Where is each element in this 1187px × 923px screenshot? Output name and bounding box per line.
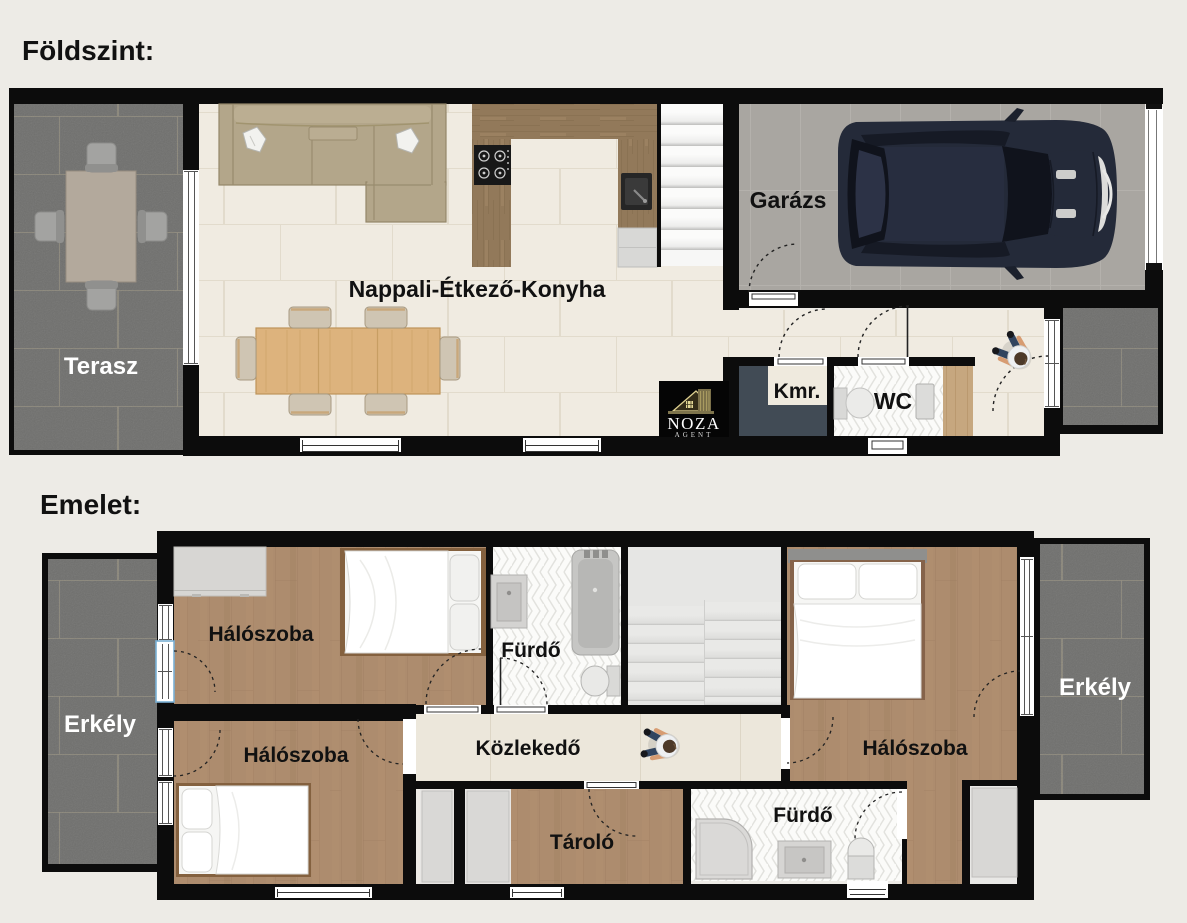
svg-text:Terasz: Terasz (64, 353, 138, 380)
svg-text:Erkély: Erkély (64, 711, 137, 738)
svg-text:Hálószoba: Hálószoba (243, 744, 348, 767)
svg-text:AGENT: AGENT (675, 431, 714, 439)
svg-text:Hálószoba: Hálószoba (208, 623, 313, 646)
svg-text:Emelet:: Emelet: (40, 489, 141, 520)
svg-text:Nappali-Étkező-Konyha: Nappali-Étkező-Konyha (349, 275, 606, 302)
svg-text:Közlekedő: Közlekedő (475, 737, 580, 760)
svg-text:Földszint:: Földszint: (22, 35, 154, 66)
svg-text:Kmr.: Kmr. (774, 380, 821, 403)
svg-text:Fürdő: Fürdő (501, 639, 560, 662)
svg-text:WC: WC (874, 388, 912, 414)
svg-text:Garázs: Garázs (750, 187, 827, 213)
svg-text:Tároló: Tároló (550, 831, 614, 854)
svg-text:Erkély: Erkély (1059, 674, 1132, 701)
svg-text:Hálószoba: Hálószoba (862, 737, 967, 760)
svg-text:Fürdő: Fürdő (773, 804, 832, 827)
